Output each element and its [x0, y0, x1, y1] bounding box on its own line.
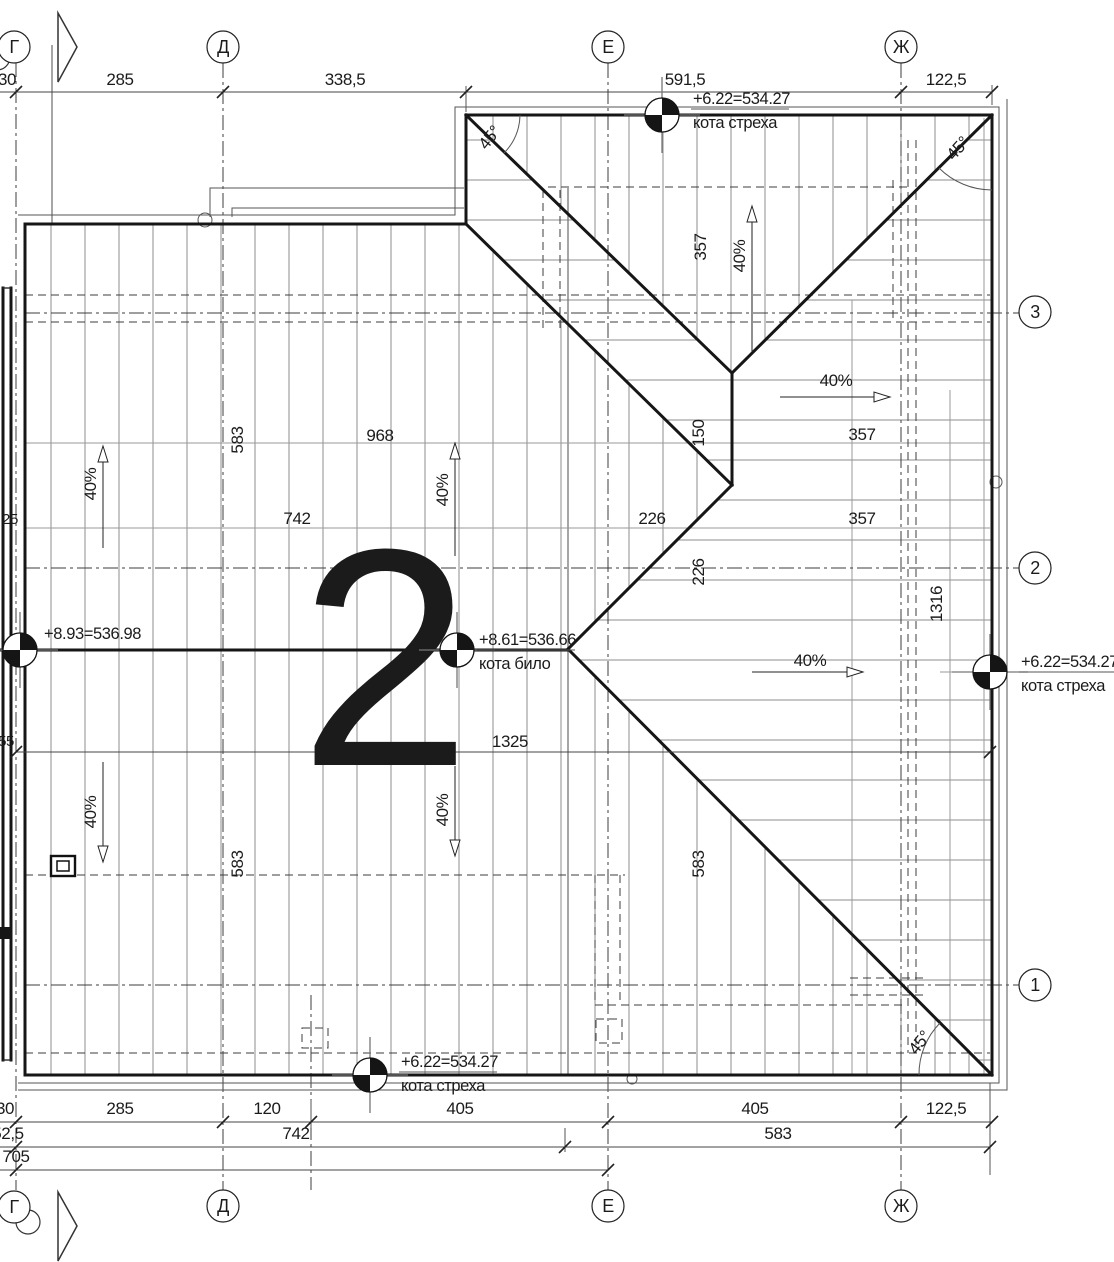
dimension-value: 405 [741, 1099, 768, 1118]
elevation-text: +6.22=534.27 [693, 90, 790, 108]
dimension-value: 285 [106, 70, 133, 89]
grid-bubble-label: 3 [1030, 302, 1040, 322]
slope-label: 40% [730, 239, 749, 272]
slope-label: 40% [794, 651, 827, 670]
elevation-text: +8.93=536.98 [44, 625, 141, 643]
dimension-value: 122,5 [926, 70, 967, 89]
elevation-text: +6.22=534.27 [1021, 653, 1114, 671]
dimension-value: 583 [764, 1124, 791, 1143]
elevation-text: кота стреха [1021, 677, 1106, 695]
dimension-value: 338,5 [325, 70, 366, 89]
dim-label: 226 [689, 558, 708, 585]
dim-label: 357 [691, 233, 710, 260]
elevation-text: +6.22=534.27 [401, 1053, 498, 1071]
grid-bubble-label: Ж [893, 37, 910, 57]
dim-label: 968 [366, 426, 393, 445]
dim-label: 583 [228, 426, 247, 453]
dimension-value: 285 [106, 1099, 133, 1118]
grid-bubble-label: Г [9, 1197, 19, 1217]
grid-bubble-label: Д [217, 37, 229, 57]
dimension-value: 405 [446, 1099, 473, 1118]
dimension-value: 30 [0, 1099, 14, 1118]
slope-label: 40% [820, 371, 853, 390]
dim-label: 357 [848, 425, 875, 444]
grid-bubble-label: 1 [1030, 975, 1040, 995]
section-flag-icon [58, 1192, 77, 1261]
dim-label: 150 [689, 419, 708, 446]
dimension-value: 52,5 [0, 1124, 24, 1143]
chimney-symbol [51, 856, 75, 876]
elevation-text: кота било [479, 655, 551, 673]
elevation-text: кота стреха [401, 1077, 486, 1095]
grid-bubble-label: Д [217, 1196, 229, 1216]
slope-label: 40% [81, 467, 100, 500]
grid-bubble-label: 2 [1030, 558, 1040, 578]
dim-label: 742 [283, 509, 310, 528]
slope-label: 40% [433, 473, 452, 506]
elevation-text: +8.61=536.66 [479, 631, 576, 649]
roof-plan-drawing: 2 58396874235715022622635735713161325583… [0, 0, 1114, 1262]
dim-label: 55 [0, 733, 14, 750]
dimension-value: 591,5 [665, 70, 706, 89]
left-wall [0, 288, 11, 1060]
dimension-value: 120 [253, 1099, 280, 1118]
slope-label: 40% [433, 793, 452, 826]
dim-label: 1325 [492, 732, 528, 751]
roof-plan-sheet: 2 58396874235715022622635735713161325583… [0, 0, 1114, 1262]
slope-label: 40% [81, 795, 100, 828]
dim-label: 583 [689, 850, 708, 877]
grid-bubble-label: Е [602, 1196, 614, 1216]
dimension-value: 122,5 [926, 1099, 967, 1118]
dimension-value: 30 [0, 70, 16, 89]
dim-label: 583 [228, 850, 247, 877]
dim-label: 226 [638, 509, 665, 528]
dim-label: 25 [2, 511, 18, 528]
dimension-value: 705 [2, 1147, 29, 1166]
grid-bubble-label: Г [9, 37, 19, 57]
dimension-value: 742 [282, 1124, 309, 1143]
grid-bubble-label: Е [602, 37, 614, 57]
dim-label: 357 [848, 509, 875, 528]
dim-label: 1316 [927, 586, 946, 622]
grid-bubble-label: Ж [893, 1196, 910, 1216]
section-flag-icon [58, 13, 77, 82]
elevation-text: кота стреха [693, 114, 778, 132]
